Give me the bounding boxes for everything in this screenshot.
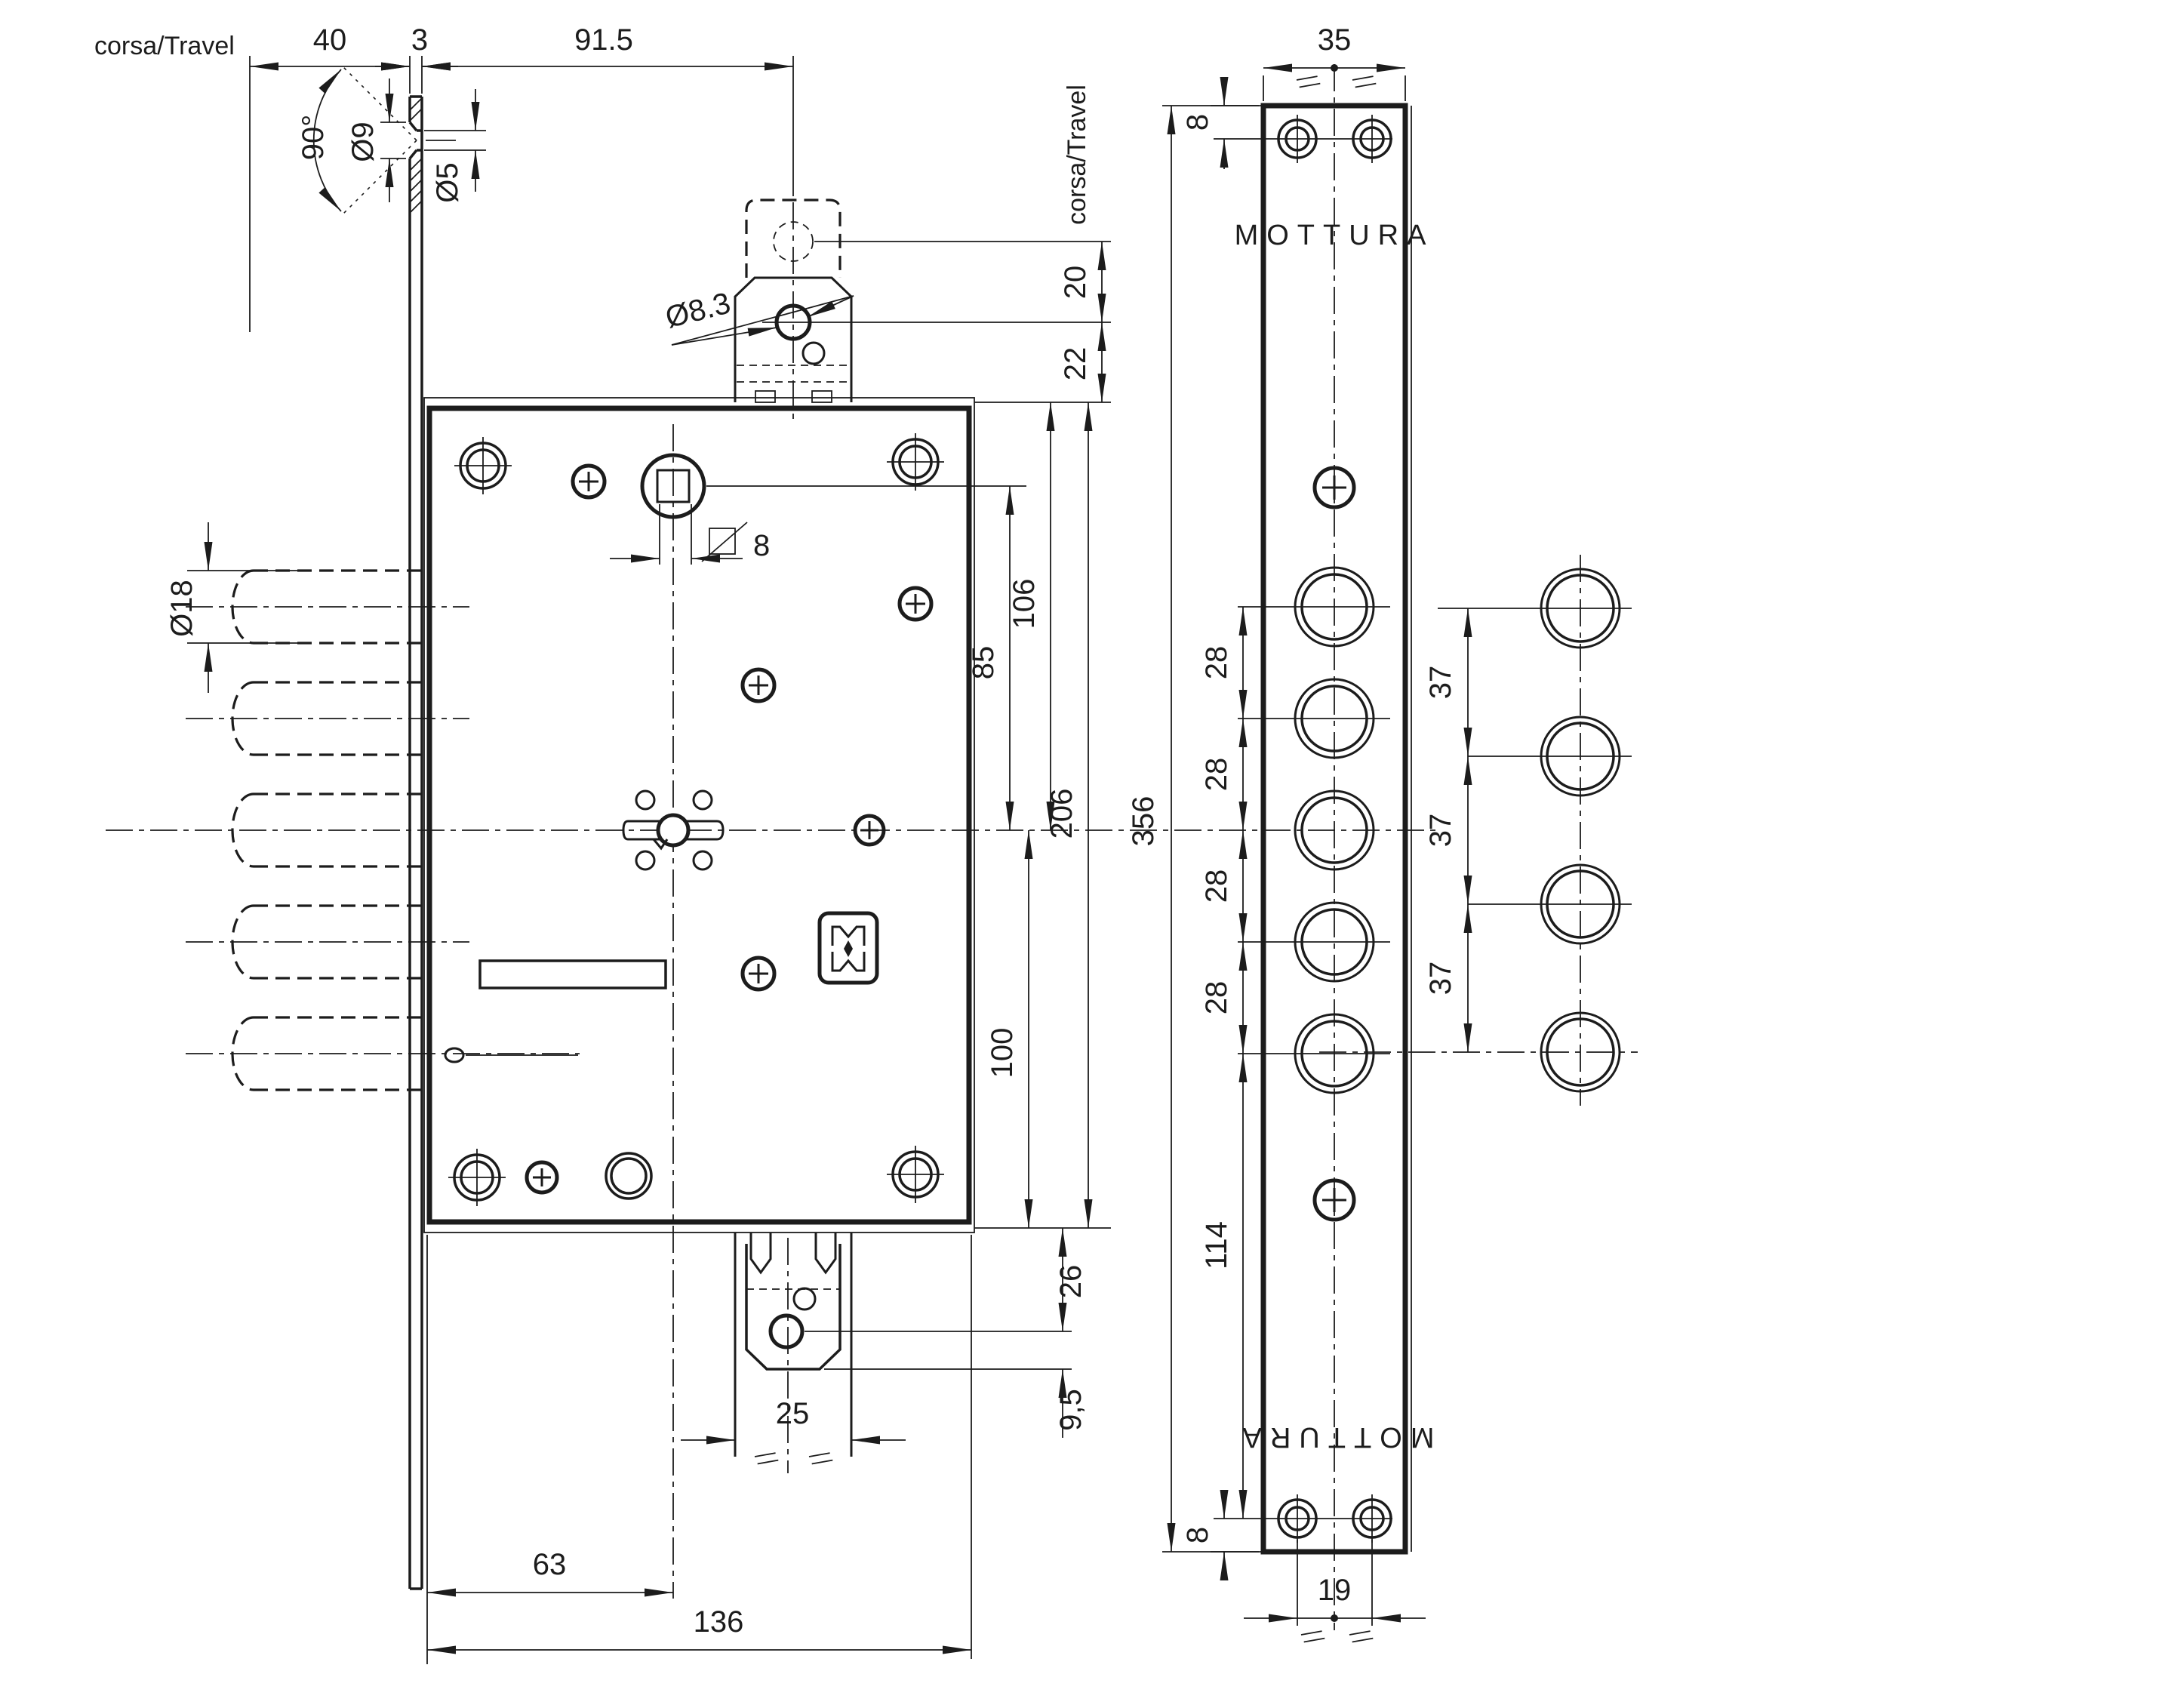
dim-106-label: 106 [1008, 579, 1041, 629]
dim-114-label: 114 [1200, 1221, 1233, 1269]
dim-25-label: 25 [776, 1397, 810, 1430]
dim-63-label: 63 [533, 1548, 567, 1581]
dim-9-5-label: 9,5 [1054, 1389, 1088, 1431]
dim-8-top-label: 8 [1181, 114, 1214, 131]
brand-text-bottom: MOTTURA [1235, 1421, 1435, 1453]
dim-28-label: 28 [1200, 646, 1233, 680]
dim-28-label: 28 [1200, 981, 1233, 1015]
dim-8-bottom-label: 8 [1181, 1527, 1214, 1543]
dim-20-label: 20 [1059, 266, 1092, 300]
dim-26-label: 26 [1054, 1265, 1088, 1299]
dim-37-label: 37 [1424, 666, 1457, 700]
dim-136-label: 136 [694, 1605, 744, 1639]
corsa-travel-label-right: corsa/Travel [1063, 85, 1091, 225]
dim-35-label: 35 [1318, 23, 1352, 57]
dim-19-label: 19 [1318, 1574, 1352, 1607]
dim-dia9-label: Ø9 [346, 122, 380, 162]
drawing-sheet: corsa/Travel 40 3 91.5 [0, 0, 2166, 1708]
brand-text-top: MOTTURA [1235, 220, 1435, 251]
dim-3-label: 3 [411, 23, 428, 57]
dim-square8-label: 8 [753, 529, 770, 562]
dim-91-5-label: 91.5 [574, 23, 633, 57]
dim-28-label: 28 [1200, 869, 1233, 903]
dim-100-label: 100 [986, 1028, 1019, 1079]
dim-40-label: 40 [313, 23, 347, 57]
dim-37-label: 37 [1424, 814, 1457, 848]
dim-356-label: 356 [1127, 796, 1160, 847]
dim-dia5-label: Ø5 [431, 162, 464, 202]
corsa-travel-label-top: corsa/Travel [94, 32, 235, 60]
dim-206-label: 206 [1045, 789, 1078, 839]
dim-37-label: 37 [1424, 962, 1457, 996]
dim-28-label: 28 [1200, 758, 1233, 792]
lock-technical-drawing: corsa/Travel 40 3 91.5 [0, 0, 2166, 1708]
dim-dia18-label: Ø18 [165, 580, 198, 637]
dim-22-label: 22 [1059, 347, 1092, 381]
dim-85-label: 85 [967, 646, 1000, 680]
dim-90deg-label: 90° [297, 115, 330, 161]
sheet-background [0, 0, 2166, 1708]
